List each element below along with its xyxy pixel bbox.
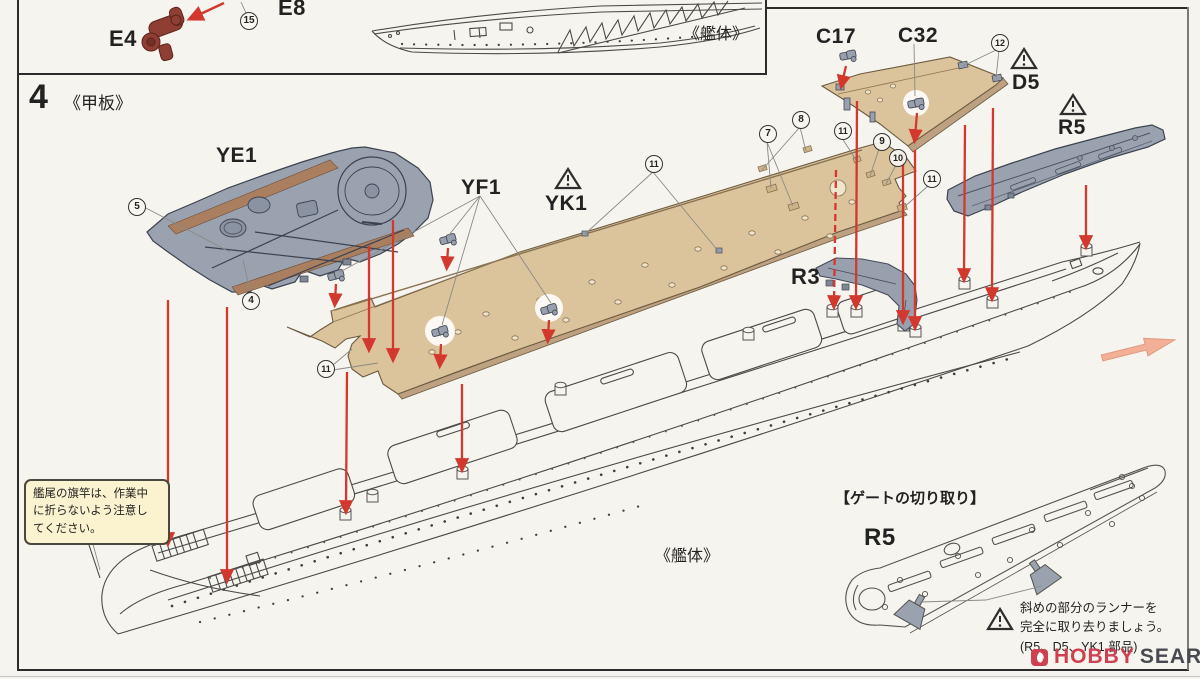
callout-8: 8 (792, 111, 810, 129)
gate-note-line2: 完全に取り去りましょう。 (1020, 620, 1169, 634)
callout-15: 15 (240, 12, 258, 30)
step-title: 《甲板》 (64, 89, 132, 114)
callout-10: 10 (889, 149, 907, 167)
callout-12: 12 (991, 34, 1009, 52)
watermark-brand1: HOBBY (1054, 645, 1135, 669)
part-label-r3: R3 (791, 264, 820, 290)
direction-arrow (1100, 331, 1177, 367)
page-bottom-border (17, 669, 1189, 671)
page-left-border (17, 0, 19, 670)
watermark-brand2: SEARCH (1140, 645, 1200, 669)
callout-11-mid: 11 (645, 155, 663, 173)
gate-note-line1: 斜めの部分のランナーを (1020, 601, 1158, 615)
hull-label-prev: 《艦体》 (684, 20, 748, 44)
stern-note-line3: てください。 (33, 523, 102, 535)
callout-11-left: 11 (317, 360, 335, 378)
page-right-border (1187, 7, 1189, 670)
part-label-c17: C17 (816, 25, 856, 49)
callout-7: 7 (759, 125, 777, 143)
part-label-c32: C32 (898, 24, 938, 48)
assembly-diagram (0, 0, 1200, 679)
gate-part-label-r5: R5 (864, 524, 896, 552)
main-panel-top-border (765, 7, 1189, 9)
scan-edge (0, 676, 1200, 677)
part-label-e8: E8 (278, 0, 306, 21)
callout-11-b: 11 (834, 122, 852, 140)
callout-5: 5 (128, 198, 146, 216)
callout-11-c: 11 (923, 170, 941, 188)
warning-icon-yk1 (554, 166, 582, 191)
hull-label-main: 《艦体》 (655, 542, 719, 566)
callout-4: 4 (242, 292, 260, 310)
hobby-search-flame-icon (1030, 648, 1049, 667)
warning-icon-gate (986, 606, 1014, 632)
part-label-ye1: YE1 (216, 144, 257, 168)
step-number: 4 (29, 78, 48, 117)
ye1-part-drawing (147, 147, 433, 295)
part-label-d5: D5 (1012, 71, 1040, 95)
stern-note-line2: に折らないよう注意し (33, 505, 148, 517)
stern-note-line1: 艦尾の旗竿は、作業中 (33, 488, 148, 500)
part-label-r5: R5 (1058, 116, 1086, 140)
gate-section-title: 【ゲートの切り取り】 (835, 487, 985, 508)
part-label-yk1: YK1 (545, 192, 587, 216)
part-label-e4: E4 (109, 26, 137, 52)
r5-part-drawing (947, 125, 1165, 216)
callout-9: 9 (873, 133, 891, 151)
instruction-sheet-page: E4 E8 《艦体》 15 4 《甲板》 YE1 YF1 YK1 C17 C32… (0, 0, 1200, 679)
part-label-yf1: YF1 (461, 176, 501, 200)
hobby-search-watermark: HOBBY SEARCH (1030, 645, 1200, 669)
warning-icon-d5 (1010, 46, 1038, 71)
warning-icon-r5 (1059, 92, 1087, 117)
stern-caution-note: 艦尾の旗竿は、作業中 に折らないよう注意し てください。 (24, 479, 170, 545)
